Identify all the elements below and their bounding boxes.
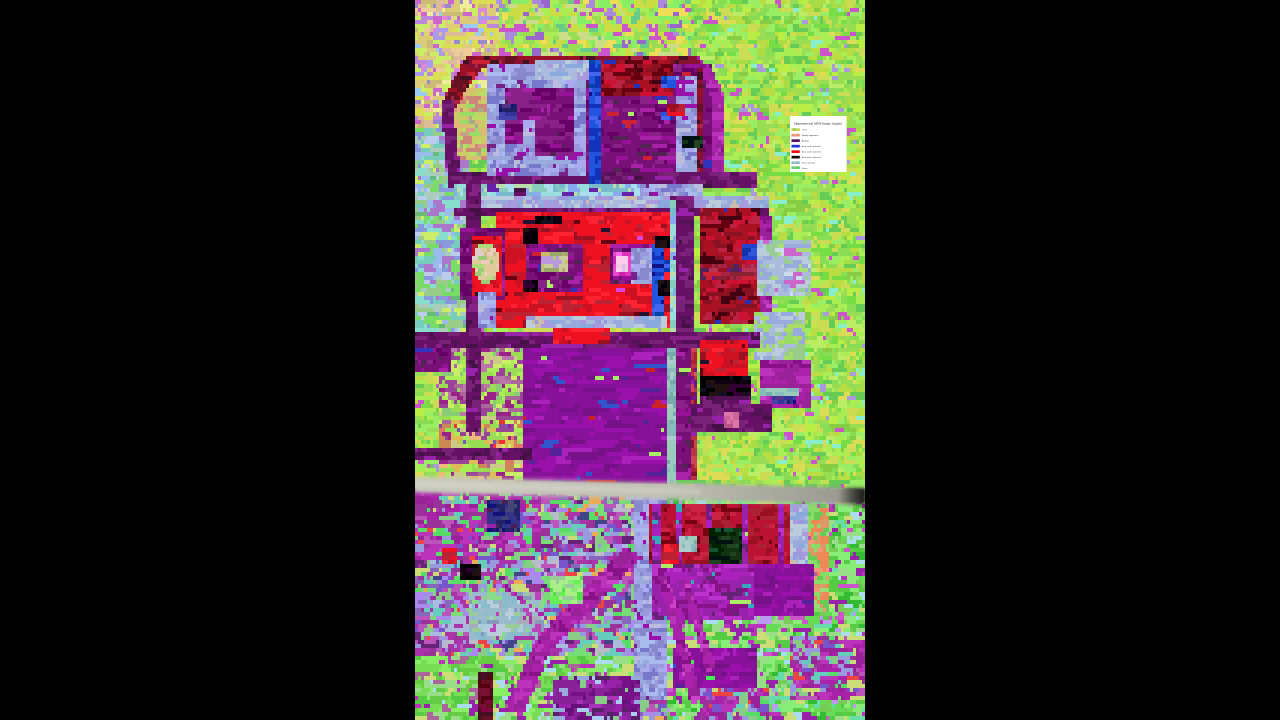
svg-text:Bare-earth material 1: Bare-earth material 1 bbox=[802, 145, 822, 148]
svg-text:Grass: Grass bbox=[802, 167, 808, 170]
svg-text:Bare-earth material 3: Bare-earth material 3 bbox=[802, 156, 822, 159]
svg-text:Woody vegetation: Woody vegetation bbox=[802, 134, 819, 137]
svg-text:Bare-earth material 2: Bare-earth material 2 bbox=[802, 151, 822, 154]
svg-text:Trees: Trees bbox=[802, 129, 807, 132]
svg-text:Asphalt: Asphalt bbox=[802, 140, 809, 143]
svg-text:Hyperspectral MNF Image Legend: Hyperspectral MNF Image Legend bbox=[794, 121, 842, 125]
svg-text:Grass and soil: Grass and soil bbox=[802, 162, 816, 165]
